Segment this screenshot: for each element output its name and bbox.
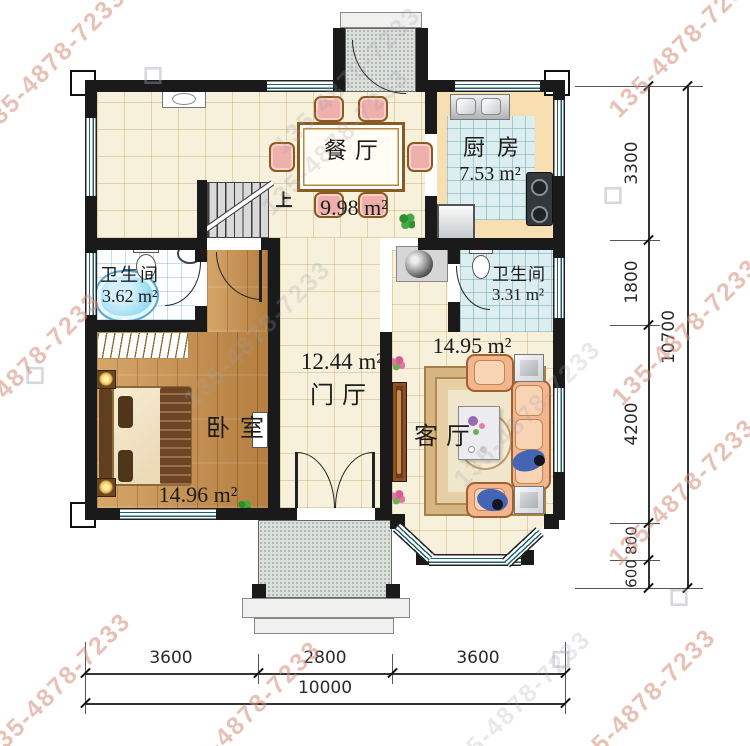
kitchen-sink-basin-icon [456,98,476,115]
floor-plan-canvas: 餐厅 9.98 m² 上 厨房 7.53 m² 卫生间 3.62 m² 卫生间 … [0,0,750,746]
area-label-bathroom-left: 3.62 m² [102,287,180,307]
wall-rear-porch-left [333,28,345,92]
window-living-right [553,388,565,472]
bed-blanket [160,387,191,485]
watermark-diamond-icon: ◇ [13,352,55,394]
area-label-foyer: 12.44 m² [284,349,400,375]
side-table [514,354,544,382]
lamp-icon [99,372,113,386]
wall-stairs [197,180,207,238]
kitchen-fridge [437,204,475,240]
wall-middle-left [85,238,207,250]
watermark-phone: 135-4878-7233 [438,625,597,746]
washing-machine-icon [405,250,433,278]
dim-line-right-segments [648,86,650,588]
rear-porch-step [340,12,422,28]
area-label-living: 14.95 m² [416,334,528,358]
area-label-bathroom-right: 3.31 m² [486,286,550,304]
witness-line [610,325,660,326]
witness-line [258,654,259,684]
watermark-phone: 135-4878-7233 [563,623,722,746]
front-door-leaf-right [372,452,375,508]
room-label-kitchen: 厨房 [444,136,538,162]
wall-bathroom-right-door-top [448,250,460,264]
window-dining-top [267,80,333,92]
window-dining-left [85,118,97,196]
dining-chair [407,142,433,172]
porch-pillar-right [386,584,400,598]
area-label-bedroom: 14.96 m² [140,483,256,507]
room-label-living: 客厅 [404,424,480,452]
person-head-icon [492,499,503,510]
wardrobe [97,332,189,359]
window-bathroom-right [553,258,565,318]
lamp-icon [99,480,113,494]
person-head-icon [534,455,545,466]
dim-label-right-600: 600 [625,546,642,602]
wall-bathroom-left-door-top [195,250,207,262]
wall-middle-stub [261,238,280,250]
sofa-cushion [515,419,543,450]
armchair-cushion [474,360,505,385]
witness-line [392,654,393,684]
window-bedroom-bottom [120,508,216,520]
front-porch-step-2 [254,618,394,634]
dim-line-bottom-total [85,703,565,705]
tv-cabinet-detail [397,390,401,474]
wall-bathroom-left-bottom [85,320,207,332]
bed-pillow [118,396,133,428]
kitchen-sink-basin-icon [481,98,501,115]
watermark-phone: 135-4878-7233 [0,607,137,746]
room-label-bathroom-left: 卫生间 [100,266,178,286]
front-porch-step-1 [242,598,410,618]
dining-vanity-basin-icon [172,93,196,105]
bed-headboard [99,388,112,484]
witness-line [610,240,660,241]
dining-chair [269,142,295,172]
door-leaf-hallway [259,250,262,302]
room-label-foyer: 门厅 [298,383,378,411]
dining-chair [358,96,388,122]
dim-label-right-3300: 3300 [624,133,642,193]
dim-label-bottom-total: 10000 [285,680,365,700]
dining-chair [314,96,344,122]
bay-window-pillar [544,514,559,529]
watermark-diamond-icon: ◇ [657,574,699,616]
stairs-up-label: 上 [272,192,296,212]
dim-label-right-1800: 1800 [624,252,642,312]
bed-pillow [118,450,133,482]
front-porch-floor [258,520,392,598]
dim-line-bottom-segments [85,673,565,675]
stove-burner-icon [531,206,548,223]
porch-pillar-left [252,584,266,598]
window-bathroom-left [85,253,97,315]
wall-bathroom-right-door-bottom [448,302,460,332]
wall-foyer-bottom-left [280,508,297,520]
wall-rear-porch-right [416,28,428,92]
dim-label-right-4200: 4200 [624,394,642,454]
sofa-cushion [515,385,543,416]
window-kitchen-top [455,80,540,92]
watermark-phone: 135-4878-7233 [603,0,750,124]
side-table [514,486,544,514]
dim-label-bottom-2800: 2800 [285,650,365,670]
room-label-dining: 餐厅 [303,138,399,168]
front-door-leaf-left [295,452,298,508]
area-label-kitchen: 7.53 m² [440,163,540,185]
window-kitchen-right [553,100,565,176]
dim-label-right-total: 10700 [661,307,679,367]
dim-line-right-total [687,86,689,588]
room-label-bedroom: 卧室 [194,416,276,444]
dim-label-bottom-3600-right: 3600 [438,650,518,670]
wall-middle-right [418,238,565,250]
area-label-dining: 9.98 m² [296,196,412,222]
room-label-bathroom-right: 卫生间 [484,266,554,284]
dim-label-bottom-3600-left: 3600 [131,650,211,670]
wall-bedroom-foyer [268,250,280,520]
